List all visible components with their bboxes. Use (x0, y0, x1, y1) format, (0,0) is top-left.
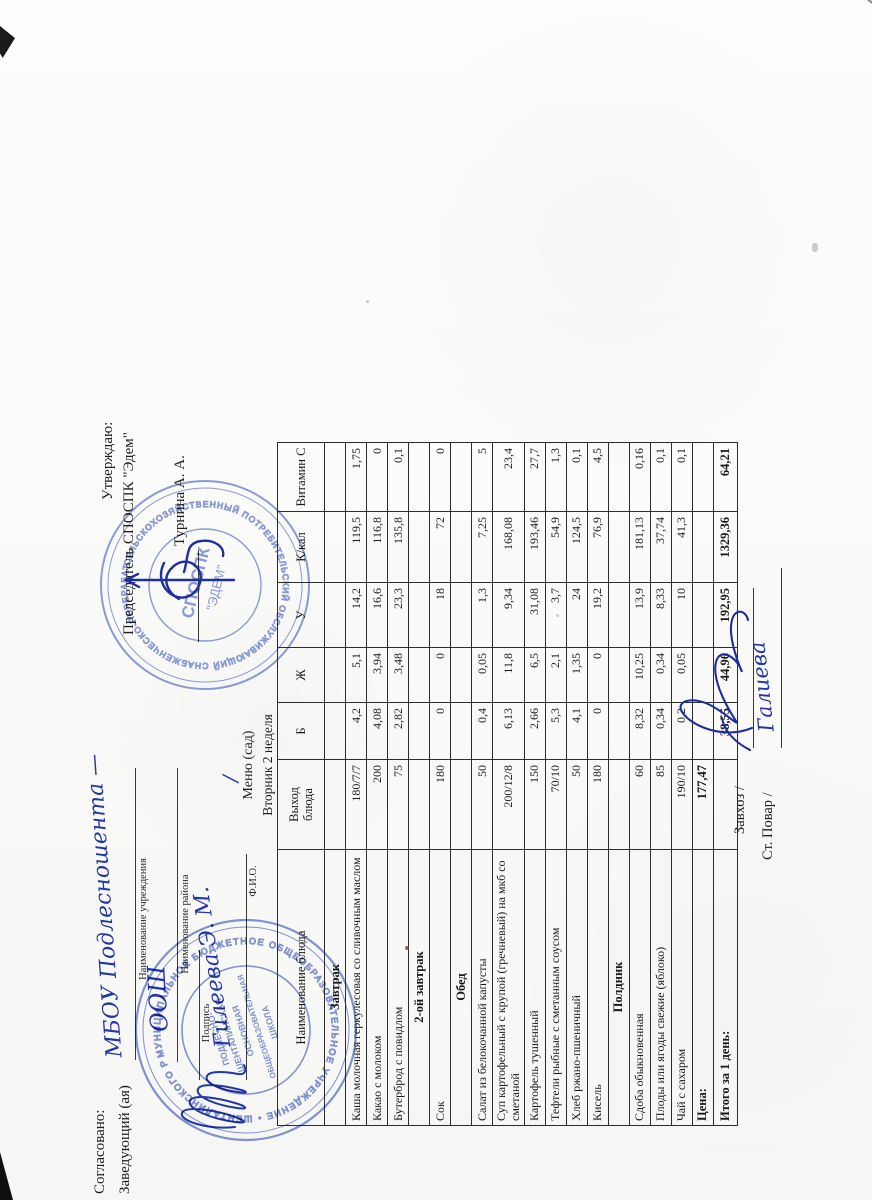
approver-signature (112, 480, 252, 660)
dish-name-cell: Каша молочная геркулесовая со сливочным … (346, 850, 367, 1126)
value-cell: 0,34 (650, 703, 671, 760)
table-row: Чай с сахаром190/100,20,051041,30,1 (671, 443, 692, 1126)
value-cell: 180 (587, 760, 608, 850)
value-cell: 7,25 (472, 512, 493, 583)
value-cell: 5,3 (545, 703, 566, 760)
zavhoz-signature (672, 580, 757, 770)
table-row: Сок1800018720 (430, 443, 451, 1126)
value-cell (451, 512, 472, 583)
value-cell: 9,34 (493, 583, 525, 648)
value-cell: 23,4 (493, 443, 525, 512)
value-cell: 190/10 (671, 760, 692, 850)
table-row: Хлеб ржано-пшеничный504,11,3524124,50,1 (566, 443, 587, 1126)
value-cell (451, 760, 472, 850)
value-cell (409, 703, 430, 760)
table-row: Цена:177,47 (692, 443, 713, 1126)
menu-table-body: ЗавтракКаша молочная геркулесовая со сли… (325, 443, 738, 1126)
value-cell: 50 (472, 760, 493, 850)
value-cell: 0 (587, 703, 608, 760)
table-row: Кисель1800019,276,94,5 (587, 443, 608, 1126)
table-row: Бутерброд с повидлом752,823,4823,3135,80… (388, 443, 409, 1126)
value-cell: 75 (388, 760, 409, 850)
table-row: Сдоба обыкновенная608,3210,2513,9181,130… (629, 443, 650, 1126)
dish-name-cell: Чай с сахаром (671, 850, 692, 1126)
value-cell: 119,5 (346, 512, 367, 583)
value-cell: 193,46 (524, 512, 545, 583)
value-cell: 13,9 (629, 583, 650, 648)
value-cell: 8,32 (629, 703, 650, 760)
value-cell: 0,16 (629, 443, 650, 512)
value-cell: 181,13 (629, 512, 650, 583)
dish-name-cell: Хлеб ржано-пшеничный (566, 850, 587, 1126)
value-cell: 3,94 (367, 648, 388, 703)
column-header: Витамин С (278, 443, 325, 512)
dish-name-cell: Бутерброд с повидлом (388, 850, 409, 1126)
value-cell (608, 443, 629, 512)
table-row: Завтрак (325, 443, 346, 1126)
value-cell (451, 648, 472, 703)
value-cell: 0,1 (650, 443, 671, 512)
value-cell: 180 (430, 760, 451, 850)
value-cell: 4,2 (346, 703, 367, 760)
value-cell: 23,3 (388, 583, 409, 648)
value-cell: 0 (430, 443, 451, 512)
dish-name-cell: 2-ой завтрак (409, 850, 430, 1126)
value-cell (325, 648, 346, 703)
value-cell: 5 (472, 443, 493, 512)
value-cell: 64,21 (713, 443, 737, 512)
value-cell: 0 (430, 648, 451, 703)
value-cell: 0 (430, 703, 451, 760)
cook-signature-line (780, 568, 782, 748)
scan-smudge (812, 243, 818, 252)
value-cell: 5,1 (346, 648, 367, 703)
value-cell: 2,1 (545, 648, 566, 703)
value-cell: 1,75 (346, 443, 367, 512)
value-cell: 11,8 (493, 648, 525, 703)
agreed-title: Согласовано: (92, 1110, 109, 1194)
dish-name-cell: Какао с молоком (367, 850, 388, 1126)
stray-slash-mark: / (218, 775, 242, 782)
table-row: Полдник (608, 443, 629, 1126)
value-cell: 37,74 (650, 512, 671, 583)
dish-name-cell: Цена: (692, 850, 713, 1126)
value-cell (608, 648, 629, 703)
value-cell: 200 (367, 760, 388, 850)
value-cell (409, 760, 430, 850)
value-cell: 41,3 (671, 512, 692, 583)
table-row: Картофель тушенный1502,666,531,08193,462… (524, 443, 545, 1126)
value-cell: 19,2 (587, 583, 608, 648)
dish-name-cell: Салат из белокочанной капусты (472, 850, 493, 1126)
value-cell: 4,08 (367, 703, 388, 760)
table-header-row: Наименование блюдаВыход блюдаБЖУК/калВит… (278, 443, 325, 1126)
value-cell: 70/10 (545, 760, 566, 850)
column-header: К/кал (278, 512, 325, 583)
table-row: Какао с молоком2004,083,9416,6116,80 (367, 443, 388, 1126)
table-row: Салат из белокочанной капусты500,40,051,… (472, 443, 493, 1126)
value-cell (692, 512, 713, 583)
document-rotated-content: Согласовано: Заведующий (ая) МБОУ Подлес… (0, 0, 872, 1200)
value-cell: 135,8 (388, 512, 409, 583)
dish-name-cell: Тефтели рыбные с сметанным соусом (545, 850, 566, 1126)
value-cell: 54,9 (545, 512, 566, 583)
value-cell: 72 (430, 512, 451, 583)
value-cell: 31,08 (524, 583, 545, 648)
value-cell: 24 (566, 583, 587, 648)
value-cell (325, 443, 346, 512)
dish-name-cell: Итого за 1 день: (713, 850, 737, 1126)
scan-speck (366, 300, 369, 303)
value-cell (325, 512, 346, 583)
dish-name-cell: Полдник (608, 850, 629, 1126)
value-cell: 1329,36 (713, 512, 737, 583)
value-cell: 2,66 (524, 703, 545, 760)
value-cell: 0,34 (650, 648, 671, 703)
value-cell (409, 648, 430, 703)
value-cell: 8,33 (650, 583, 671, 648)
value-cell (325, 703, 346, 760)
value-cell: 27,7 (524, 443, 545, 512)
value-cell: 6,13 (493, 703, 525, 760)
value-cell: 150 (524, 760, 545, 850)
value-cell: 76,9 (587, 512, 608, 583)
column-header: У (278, 583, 325, 648)
table-row: Плоды или ягоды свежие (яблоко)850,340,3… (650, 443, 671, 1126)
value-cell: 85 (650, 760, 671, 850)
value-cell (608, 703, 629, 760)
value-cell: 177,47 (692, 760, 713, 850)
menu-table: Наименование блюдаВыход блюдаБЖУК/калВит… (277, 442, 738, 1126)
value-cell: 0,1 (566, 443, 587, 512)
value-cell: 4,5 (587, 443, 608, 512)
value-cell (409, 443, 430, 512)
value-cell: 16,6 (367, 583, 388, 648)
value-cell (451, 583, 472, 648)
value-cell: 1,3 (472, 583, 493, 648)
scan-speck (405, 946, 409, 950)
scanned-page: Согласовано: Заведующий (ая) МБОУ Подлес… (0, 0, 872, 1200)
value-cell: 180/7/7 (346, 760, 367, 850)
fio-label: Ф.И.О. (248, 846, 259, 916)
value-cell (409, 512, 430, 583)
value-cell (608, 583, 629, 648)
value-cell: 168,08 (493, 512, 525, 583)
column-header: Наименование блюда (278, 850, 325, 1126)
value-cell: 200/12/8 (493, 760, 525, 850)
scan-speck (556, 614, 559, 617)
value-cell: 1,3 (545, 443, 566, 512)
value-cell (325, 583, 346, 648)
value-cell: 4,1 (566, 703, 587, 760)
column-header: Ж (278, 648, 325, 703)
column-header: Б (278, 703, 325, 760)
dish-name-cell: Плоды или ягоды свежие (яблоко) (650, 850, 671, 1126)
value-cell: 0,1 (671, 443, 692, 512)
value-cell: 6,5 (524, 648, 545, 703)
menu-title: Меню (сад) (241, 685, 257, 845)
value-cell: 0,4 (472, 703, 493, 760)
value-cell (608, 760, 629, 850)
value-cell: 116,8 (367, 512, 388, 583)
value-cell: 10,25 (629, 648, 650, 703)
dish-name-cell: Суп картофельный с крупой (гречневый) на… (493, 850, 525, 1126)
value-cell (608, 512, 629, 583)
dish-name-cell: Картофель тушенный (524, 850, 545, 1126)
value-cell: 0 (587, 648, 608, 703)
value-cell: 18 (430, 583, 451, 648)
value-cell (451, 703, 472, 760)
value-cell: 3,48 (388, 648, 409, 703)
value-cell: 60 (629, 760, 650, 850)
table-row: Каша молочная геркулесовая со сливочным … (346, 443, 367, 1126)
institution-handwriting: МБОУ Подлесношента — (81, 753, 127, 1058)
table-row: Тефтели рыбные с сметанным соусом70/105,… (545, 443, 566, 1126)
value-cell: 0,1 (388, 443, 409, 512)
value-cell: 1,35 (566, 648, 587, 703)
value-cell (692, 443, 713, 512)
cook-label: Ст. Повар / (760, 792, 777, 860)
value-cell (451, 443, 472, 512)
table-row: Суп картофельный с крупой (гречневый) на… (493, 443, 525, 1126)
table-row: Итого за 1 день:38,5544,96192,951329,366… (713, 443, 737, 1126)
dish-name-cell: Сдоба обыкновенная (629, 850, 650, 1126)
value-cell (325, 760, 346, 850)
zavhoz-label: Завхоз / (732, 786, 749, 834)
value-cell: 124,5 (566, 512, 587, 583)
value-cell: 14,2 (346, 583, 367, 648)
value-cell: 50 (566, 760, 587, 850)
dish-name-cell: Завтрак (325, 850, 346, 1126)
value-cell: 0,05 (472, 648, 493, 703)
dish-name-cell: Кисель (587, 850, 608, 1126)
dish-name-cell: Обед (451, 850, 472, 1126)
dish-name-cell: Сок (430, 850, 451, 1126)
value-cell (409, 583, 430, 648)
value-cell: 2,82 (388, 703, 409, 760)
table-row: Обед (451, 443, 472, 1126)
value-cell: 0 (367, 443, 388, 512)
column-header: Выход блюда (278, 760, 325, 850)
table-row: 2-ой завтрак (409, 443, 430, 1126)
menu-subtitle: Вторник 2 неделя (260, 685, 276, 845)
